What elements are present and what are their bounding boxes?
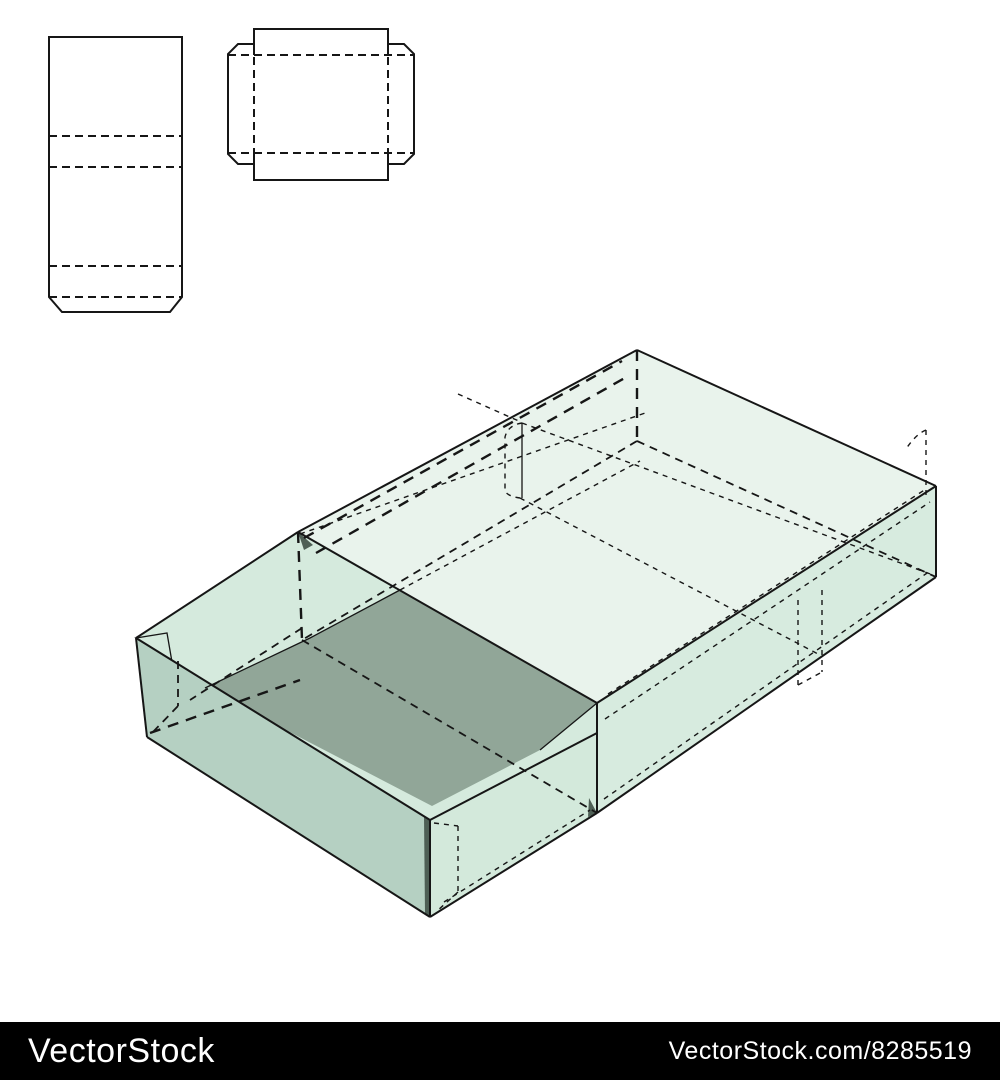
diecut-template-sleeve [49, 37, 182, 312]
image-credit-url: VectorStock.com/8285519 [669, 1037, 972, 1066]
diecut-template-tray-sheet [228, 29, 414, 180]
tray-template-bottom-panel [254, 153, 388, 180]
box-3d-illustration [136, 350, 936, 917]
tray-template-left-tab [228, 44, 254, 164]
brand-wordmark: VectorStock [28, 1032, 215, 1071]
tray-template-right-tab [388, 44, 414, 164]
vector-illustration-page: VectorStock VectorStock.com/8285519 [0, 0, 1000, 1080]
sleeve-template-outline [49, 37, 182, 312]
watermark-bar: VectorStock VectorStock.com/8285519 [0, 1022, 1000, 1080]
tray-template-top-panel [254, 29, 388, 55]
box-diecut-artwork [0, 0, 1000, 1080]
